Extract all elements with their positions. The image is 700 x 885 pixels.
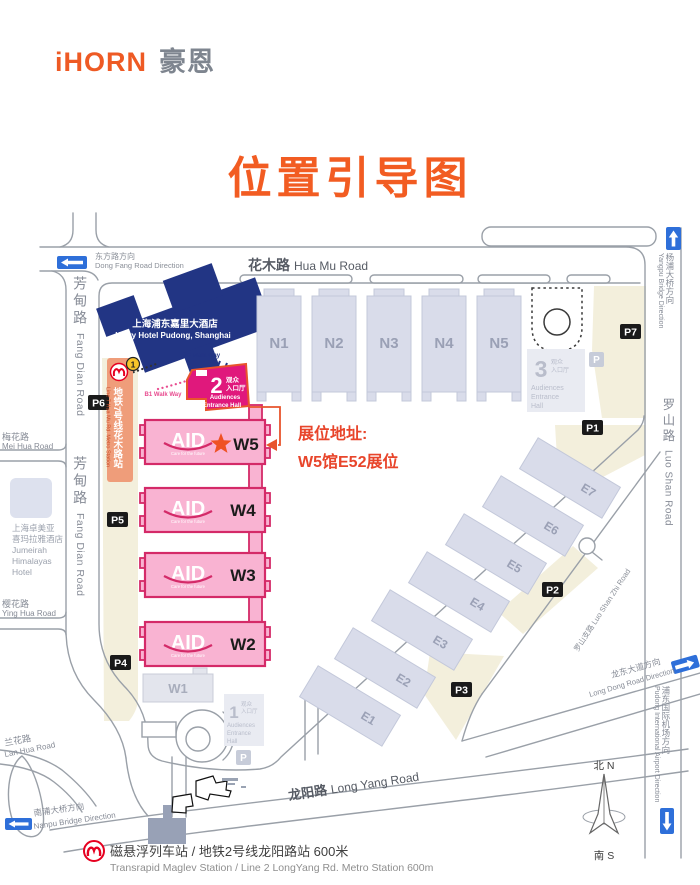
svg-text:入口厅: 入口厅 [241,708,258,715]
road-label-yinghua-cn: 樱花路 [2,598,29,609]
compass-north-label: 北 N [594,760,615,772]
svg-text:W1: W1 [168,681,188,696]
svg-text:P3: P3 [455,685,468,697]
svg-text:Care for the future: Care for the future [171,584,206,589]
jumeirah-hotel-building [10,478,52,518]
svg-text:N3: N3 [379,335,398,352]
svg-text:P1: P1 [586,423,599,435]
svg-text:P: P [593,355,600,366]
footer-station-en: Transrapid Maglev Station / Line 2 LongY… [110,862,434,874]
svg-text:1: 1 [131,360,136,370]
dongfang-label-en: Dong Fang Road Direction [95,261,184,270]
longdong-arrow-icon [671,654,700,674]
svg-text:Audiences: Audiences [227,723,255,729]
dongfang-arrow-icon [57,256,87,269]
road-label-longyang: 龙阳路Long Yang Road [287,769,420,803]
parking-p2: P2 [542,582,563,597]
svg-text:P5: P5 [111,515,124,527]
nanpu-arrow-icon [5,818,32,830]
svg-text:Audiences: Audiences [210,395,241,401]
svg-text:W5: W5 [233,435,259,454]
hall-w1: W1 [143,668,213,702]
svg-text:入口厅: 入口厅 [551,367,569,374]
svg-text:观众: 观众 [241,701,253,708]
svg-text:Audiences: Audiences [531,385,564,392]
road-label-meihua-cn: 梅花路 [2,431,29,442]
svg-text:W4: W4 [230,501,256,520]
road-label-fangdian-upper: 芳甸路Fang Dian Road [72,276,88,416]
dotted-plaza [532,288,582,351]
jumeirah-hotel-label: 上海卓美亚 喜玛拉雅酒店 Jumeirah Himalayas Hotel [12,523,64,577]
small-buildings [172,776,231,813]
svg-text:Entrance: Entrance [531,394,559,401]
west-halls: AIDCare for the future AIDCare for the f… [140,405,270,666]
svg-text:上海卓美亚: 上海卓美亚 [12,523,55,533]
yangpu-direction-label: 杨浦大桥方向 Yangpu Bridge Direction [656,253,674,328]
walkway-2f-label: 2F Walk Way [184,353,221,359]
booth-address-line2: W5馆E52展位 [298,452,398,471]
aid-logo-w2: AIDCare for the future [164,632,212,658]
svg-text:Entrance: Entrance [227,731,252,737]
road-label-huamu: 花木路Hua Mu Road [248,257,368,273]
dongfang-label-cn: 东方路方向 [95,251,135,261]
road-label-luoshan: 罗山路Luo Shan Road [660,398,674,526]
entrance-hall-1: 1 观众 入口厅 Audiences Entrance Hall P [224,694,264,765]
aid-logo-w4: AIDCare for the future [164,498,212,524]
svg-text:N1: N1 [269,335,288,352]
north-hall-labels: N1 N2 N3 N4 N5 [269,335,508,352]
parking-p5: P5 [107,512,128,527]
entrance-hall-2: 2 观众 入口厅 Audiences Entrance Hall [187,364,249,410]
svg-text:Care for the future: Care for the future [171,653,206,658]
svg-text:P7: P7 [624,327,637,339]
aid-logo-w3: AIDCare for the future [164,563,212,589]
svg-text:观众: 观众 [226,375,240,384]
svg-text:1: 1 [229,703,238,722]
airport-direction-label: 浦东国际机场方向 Pudong International Airport Di… [652,686,670,802]
svg-text:Jumeirah: Jumeirah [12,545,47,555]
svg-text:入口厅: 入口厅 [225,384,246,392]
svg-text:P4: P4 [114,658,127,670]
walkway-b1-label: B1 Walk Way [145,392,183,398]
svg-text:W3: W3 [230,566,256,585]
yangpu-arrow-icon [666,227,681,250]
aid-logo-w5: AIDCare for the future [164,430,212,456]
parking-p7: P7 [620,324,641,339]
footer-station-cn: 磁悬浮列车站 / 地铁2号线龙阳路站 600米 [110,844,348,859]
svg-text:Himalayas: Himalayas [12,556,52,566]
svg-text:喜玛拉雅酒店: 喜玛拉雅酒店 [12,534,64,544]
metro-line7-label: 地铁7号线花木路站 Line 7 Hua Mu Rd. Metro Statio… [104,387,121,468]
compass: 北 N 南 S [583,760,625,862]
svg-text:Hotel: Hotel [12,567,32,577]
svg-text:3: 3 [535,356,548,382]
kerry-hotel-label-cn: 上海浦东嘉里大酒店 [132,318,218,330]
svg-text:N4: N4 [434,335,454,352]
svg-text:Entrance Hall: Entrance Hall [203,403,242,409]
svg-text:Hall: Hall [531,403,544,410]
road-label-fangdian-lower: 芳甸路Fang Dian Road [72,456,88,596]
entrance-hall-3: 3 观众 入口厅 Audiences Entrance Hall P [527,349,604,412]
svg-text:观众: 观众 [551,359,563,366]
booth-address-line1: 展位地址: [298,424,367,443]
svg-text:P: P [240,753,247,764]
svg-text:Care for the future: Care for the future [171,451,206,456]
svg-text:Care for the future: Care for the future [171,519,206,524]
booth-callout: 展位地址: W5馆E52展位 [249,407,398,471]
svg-text:P2: P2 [546,585,559,597]
kerry-hotel-label-en: Kerry Hotel Pudong, Shanghai [115,331,231,340]
road-label-meihua-en: Mei Hua Road [2,442,53,451]
parking-p1: P1 [582,420,603,435]
compass-south-label: 南 S [594,849,614,862]
svg-text:Hall: Hall [227,739,237,745]
airport-arrow-icon [660,808,674,834]
parking-p4: P4 [110,655,131,670]
footer-metro-note: 磁悬浮列车站 / 地铁2号线龙阳路站 600米 Transrapid Magle… [84,841,434,874]
svg-text:W2: W2 [230,635,256,654]
svg-text:N2: N2 [324,335,343,352]
parking-p3: P3 [451,682,472,697]
road-label-yinghua-en: Ying Hua Road [2,609,56,618]
svg-text:N5: N5 [489,335,508,352]
